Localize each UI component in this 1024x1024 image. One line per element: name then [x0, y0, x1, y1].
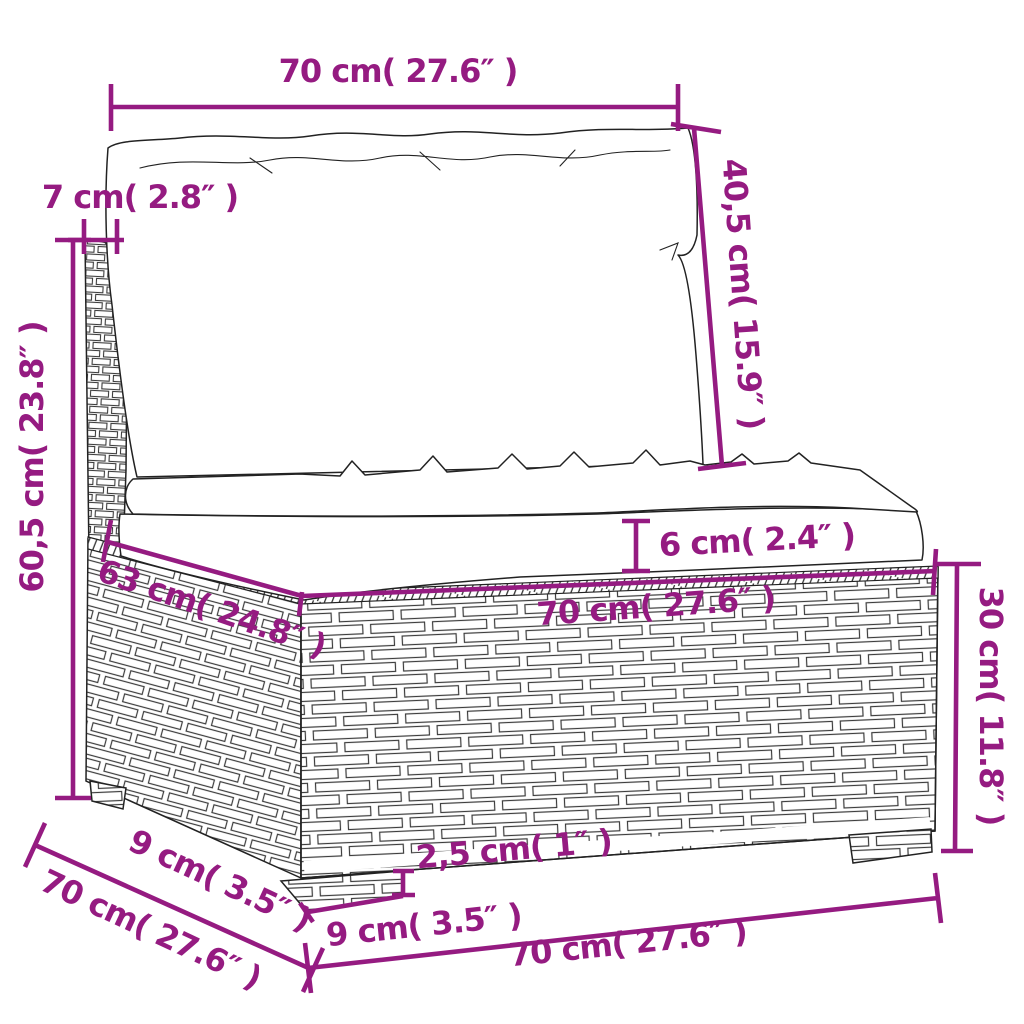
- dim-back-thickness-label: 7 cm( 2.8″ ): [42, 178, 238, 216]
- dim-top-width-label: 70 cm( 27.6″ ): [279, 52, 518, 90]
- sofa-dimension-drawing: 70 cm( 27.6″ ) 40,5 cm( 15.9″ ) 7 cm( 2.…: [0, 0, 1024, 1024]
- dim-back-cushion-height-label: 40,5 cm( 15.9″ ): [715, 157, 772, 430]
- dim-base-height-label: 30 cm( 11.8″ ): [972, 587, 1010, 826]
- dim-bottom-width-label: 70 cm( 27.6″ ): [507, 912, 748, 975]
- dim-total-height: 60,5 cm( 23.8″ ): [13, 240, 91, 798]
- dim-top-width-line: [111, 84, 678, 131]
- dim-base-height: 30 cm( 11.8″ ): [934, 564, 1010, 851]
- leg-front-right: [849, 829, 932, 863]
- dim-total-height-label: 60,5 cm( 23.8″ ): [13, 321, 51, 592]
- dimension-diagram: 70 cm( 27.6″ ) 40,5 cm( 15.9″ ) 7 cm( 2.…: [0, 0, 1024, 1024]
- dim-top-width: 70 cm( 27.6″ ): [111, 52, 678, 131]
